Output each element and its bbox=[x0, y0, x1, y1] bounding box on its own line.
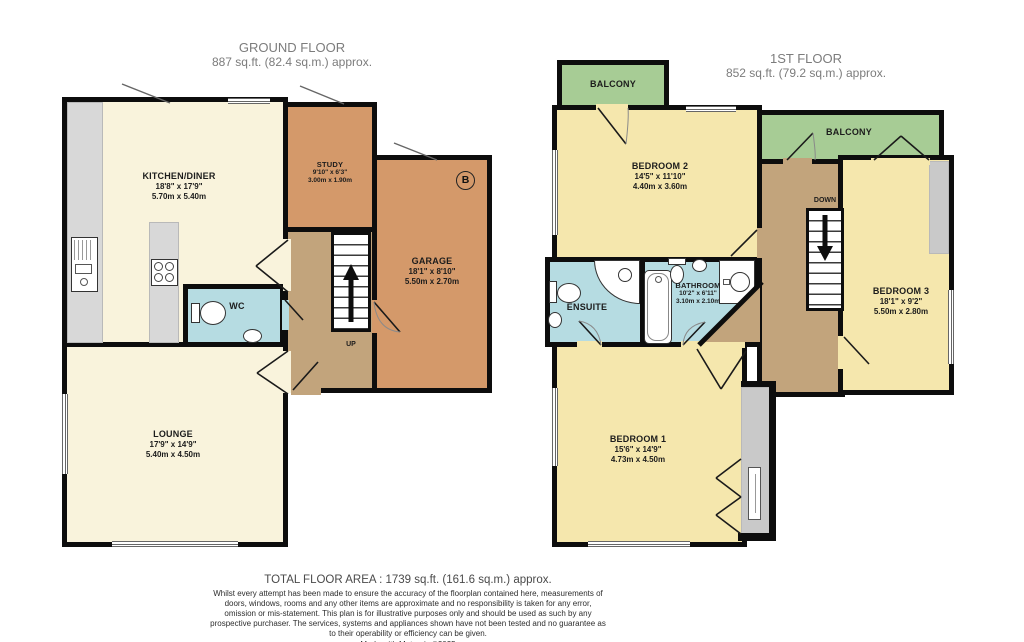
floorplan-canvas: GROUND FLOOR 887 sq.ft. (82.4 sq.m.) app… bbox=[0, 0, 1024, 642]
footer-block: TOTAL FLOOR AREA : 1739 sq.ft. (161.6 sq… bbox=[158, 574, 658, 642]
opening-wc bbox=[282, 300, 289, 330]
ground-floor-title: GROUND FLOOR bbox=[142, 41, 442, 55]
opening-balcony-left bbox=[596, 104, 628, 111]
hob-burner bbox=[154, 273, 163, 282]
total-floor-area: TOTAL FLOOR AREA : 1739 sq.ft. (161.6 sq… bbox=[158, 574, 658, 586]
opening-bedroom1 bbox=[700, 342, 745, 348]
first-floor-area: 852 sq.ft. (79.2 sq.m.) approx. bbox=[656, 66, 956, 80]
ensuite-basin-icon bbox=[548, 312, 562, 328]
hob-burner bbox=[165, 273, 174, 282]
stairs-up-label: UP bbox=[331, 341, 371, 348]
window-bedroom2-top bbox=[686, 106, 736, 112]
window-bedroom1-left bbox=[552, 388, 558, 466]
first-floor-title-block: 1ST FLOOR 852 sq.ft. (79.2 sq.m.) approx… bbox=[656, 52, 956, 80]
label-study: STUDY 9'10" x 6'3" 3.00m x 1.90m bbox=[287, 160, 373, 185]
boiler-icon: B bbox=[456, 171, 475, 190]
opening-lounge-hall bbox=[283, 351, 291, 393]
opening-front-door bbox=[291, 388, 321, 395]
window-bedroom2-left bbox=[552, 150, 558, 235]
window-kitchen-top bbox=[228, 98, 270, 104]
hob-burner bbox=[154, 262, 163, 271]
window-lounge-bottom bbox=[112, 541, 238, 547]
label-ensuite: ENSUITE bbox=[548, 302, 626, 313]
ground-floor-title-block: GROUND FLOOR 887 sq.ft. (82.4 sq.m.) app… bbox=[142, 41, 442, 69]
label-lounge: LOUNGE 17'9" x 14'9" 5.40m x 4.50m bbox=[103, 429, 243, 460]
wall-segment bbox=[741, 381, 776, 387]
hob-icon bbox=[151, 259, 178, 286]
hob-burner bbox=[165, 262, 174, 271]
label-bathroom: BATHROOM 10'2" x 6'11" 3.10m x 2.10m bbox=[652, 281, 744, 306]
stairs-down-label: DOWN bbox=[792, 197, 858, 204]
opening-bedroom3 bbox=[838, 336, 845, 369]
first-floor-title: 1ST FLOOR bbox=[656, 52, 956, 66]
label-bedroom3: BEDROOM 3 18'1" x 9'2" 5.50m x 2.80m bbox=[846, 286, 956, 317]
label-bedroom2: BEDROOM 2 14'5" x 11'10" 4.40m x 3.60m bbox=[582, 161, 738, 192]
opening-balcony-right-single bbox=[783, 158, 812, 165]
kitchen-counter-left bbox=[67, 102, 103, 343]
opening-garage bbox=[372, 300, 380, 333]
outer-wall-segment bbox=[769, 383, 776, 539]
stairs-down bbox=[806, 208, 844, 311]
stairs-up bbox=[331, 232, 371, 332]
label-balcony-left: BALCONY bbox=[559, 79, 667, 90]
bathroom-sink-icon bbox=[692, 259, 707, 272]
label-kitchen: KITCHEN/DINER 18'8" x 17'9" 5.70m x 5.40… bbox=[104, 171, 254, 202]
opening-kitchen-hall bbox=[283, 239, 291, 291]
bedroom3-wardrobe bbox=[929, 161, 949, 254]
window-lounge-left bbox=[62, 394, 68, 474]
label-bedroom1: BEDROOM 1 15'6" x 14'9" 4.73m x 4.50m bbox=[567, 434, 709, 465]
ensuite-sink-icon bbox=[618, 268, 632, 282]
sink-basin bbox=[75, 264, 92, 274]
opening-bedroom2-landing bbox=[757, 228, 763, 258]
bathroom-toilet-tank-icon bbox=[668, 258, 686, 265]
wc-sink-icon bbox=[243, 329, 262, 343]
ground-floor-area: 887 sq.ft. (82.4 sq.m.) approx. bbox=[142, 55, 442, 69]
kitchen-sink-unit-icon bbox=[71, 237, 98, 292]
wc-toilet-tank-icon bbox=[191, 303, 200, 323]
label-garage: GARAGE 18'1" x 8'10" 5.50m x 2.70m bbox=[374, 256, 490, 287]
label-balcony-right: BALCONY bbox=[786, 127, 912, 138]
wall-segment-bottom bbox=[738, 533, 776, 541]
wardrobe-sliding-door bbox=[748, 467, 761, 520]
fridge-hatch bbox=[74, 240, 93, 260]
sink-drain bbox=[80, 278, 88, 286]
opening-ensuite bbox=[577, 341, 602, 348]
ensuite-toilet-tank-icon bbox=[549, 281, 557, 303]
window-bedroom1-bottom bbox=[588, 541, 690, 547]
ensuite-toilet-bowl-icon bbox=[557, 283, 581, 303]
disclaimer-text: Whilst every attempt has been made to en… bbox=[208, 589, 608, 639]
label-wc: WC bbox=[215, 301, 259, 312]
opening-balcony-right-double bbox=[871, 158, 930, 165]
